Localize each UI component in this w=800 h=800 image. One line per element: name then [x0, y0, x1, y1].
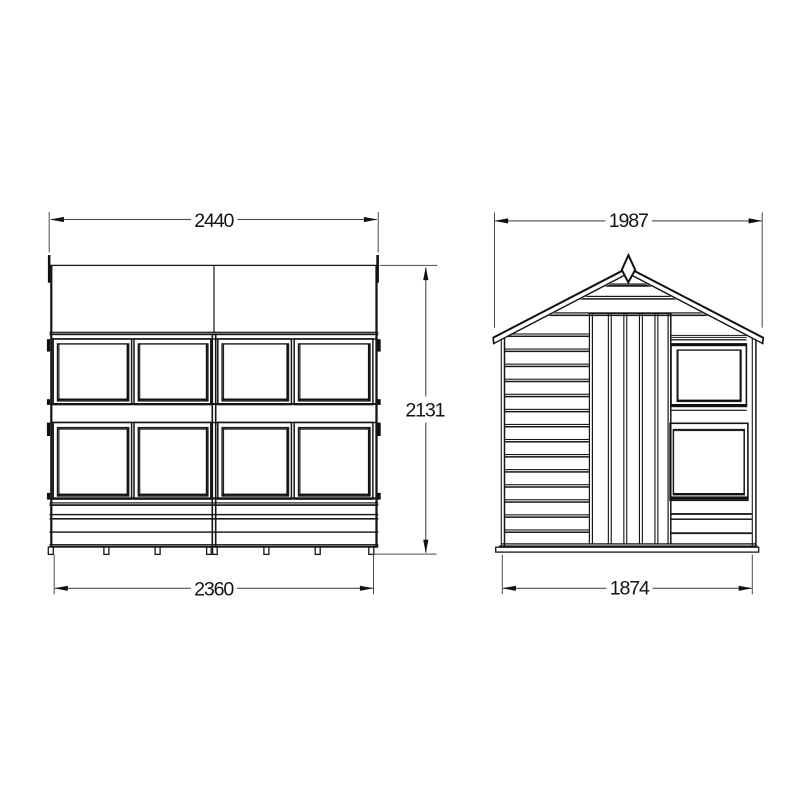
svg-text:2131: 2131	[405, 400, 444, 422]
svg-text:1987: 1987	[609, 210, 648, 232]
svg-text:2360: 2360	[194, 578, 234, 600]
svg-text:2440: 2440	[194, 210, 234, 232]
svg-text:1874: 1874	[610, 578, 650, 600]
